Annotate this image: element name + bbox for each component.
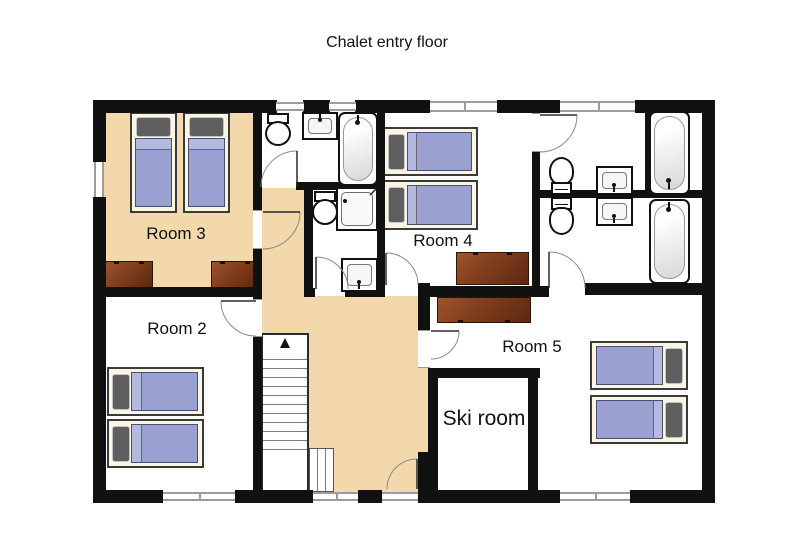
hallway-floor-entry <box>332 452 418 492</box>
wall-segment <box>93 100 106 162</box>
wall-segment <box>304 288 315 297</box>
bed <box>383 180 478 230</box>
door-opening <box>253 210 262 249</box>
wall-segment <box>418 283 430 332</box>
bed <box>183 112 230 213</box>
dresser <box>105 261 153 288</box>
window <box>560 492 630 501</box>
shower-icon <box>336 187 378 231</box>
wall-segment <box>418 490 560 503</box>
bed-pillow <box>136 117 170 137</box>
wall-segment <box>93 197 106 503</box>
bed-pillow <box>112 426 130 462</box>
room3-label: Room 3 <box>146 224 206 244</box>
wall-segment <box>253 113 262 210</box>
door-opening <box>253 299 262 337</box>
wall-segment <box>702 100 715 503</box>
dresser <box>456 252 529 285</box>
wall-segment <box>235 490 313 503</box>
toilet-tank <box>551 182 572 195</box>
window <box>313 492 358 501</box>
window <box>94 162 104 197</box>
ski-room-label: Ski room <box>443 407 526 431</box>
bed-pillow <box>388 187 405 224</box>
door-opening <box>418 330 430 368</box>
bed-pillow <box>665 348 683 384</box>
staircase <box>261 333 309 492</box>
room2-label: Room 2 <box>147 319 207 339</box>
window <box>329 102 356 111</box>
room5-label: Room 5 <box>502 337 562 357</box>
bed <box>383 127 478 176</box>
wall-segment <box>93 287 253 297</box>
dresser <box>211 261 259 288</box>
room4-label: Room 4 <box>413 231 473 251</box>
wall-segment <box>497 100 560 113</box>
wall-segment <box>428 368 540 378</box>
stair-landing <box>309 448 334 492</box>
vestibule-floor <box>262 188 305 338</box>
page-title: Chalet entry floor <box>326 34 448 52</box>
window <box>163 492 235 501</box>
toilet-icon <box>549 207 574 235</box>
door-opening <box>532 113 540 152</box>
wall-segment <box>253 249 262 301</box>
hallway-floor-main <box>305 336 430 452</box>
window <box>430 101 497 112</box>
bed-pillow <box>388 134 405 170</box>
bed-pillow <box>189 117 223 137</box>
stairs-up-arrow-icon <box>280 338 290 348</box>
bed <box>107 419 204 468</box>
bed <box>590 341 688 390</box>
wall-segment <box>253 337 262 492</box>
wall-segment <box>532 150 540 290</box>
wall-segment <box>418 452 430 492</box>
window <box>560 101 635 112</box>
dresser <box>437 297 531 323</box>
toilet-icon <box>312 199 338 225</box>
toilet-icon <box>549 157 574 185</box>
entry-door-opening <box>382 492 418 501</box>
window <box>276 102 304 111</box>
wall-segment <box>304 188 313 296</box>
bed <box>590 395 688 444</box>
floor-plan: Chalet entry floor <box>0 0 800 533</box>
wall-segment <box>528 368 538 498</box>
wall-segment <box>93 100 277 113</box>
wall-segment <box>585 283 702 295</box>
bed <box>130 112 177 213</box>
stair-treads <box>263 351 307 450</box>
wall-segment <box>358 490 382 503</box>
toilet-icon <box>265 121 291 146</box>
bed-pillow <box>665 402 683 438</box>
wall-segment <box>377 113 385 296</box>
hallway-floor-upper <box>305 296 418 336</box>
bed-pillow <box>112 374 130 410</box>
bed <box>107 367 204 416</box>
